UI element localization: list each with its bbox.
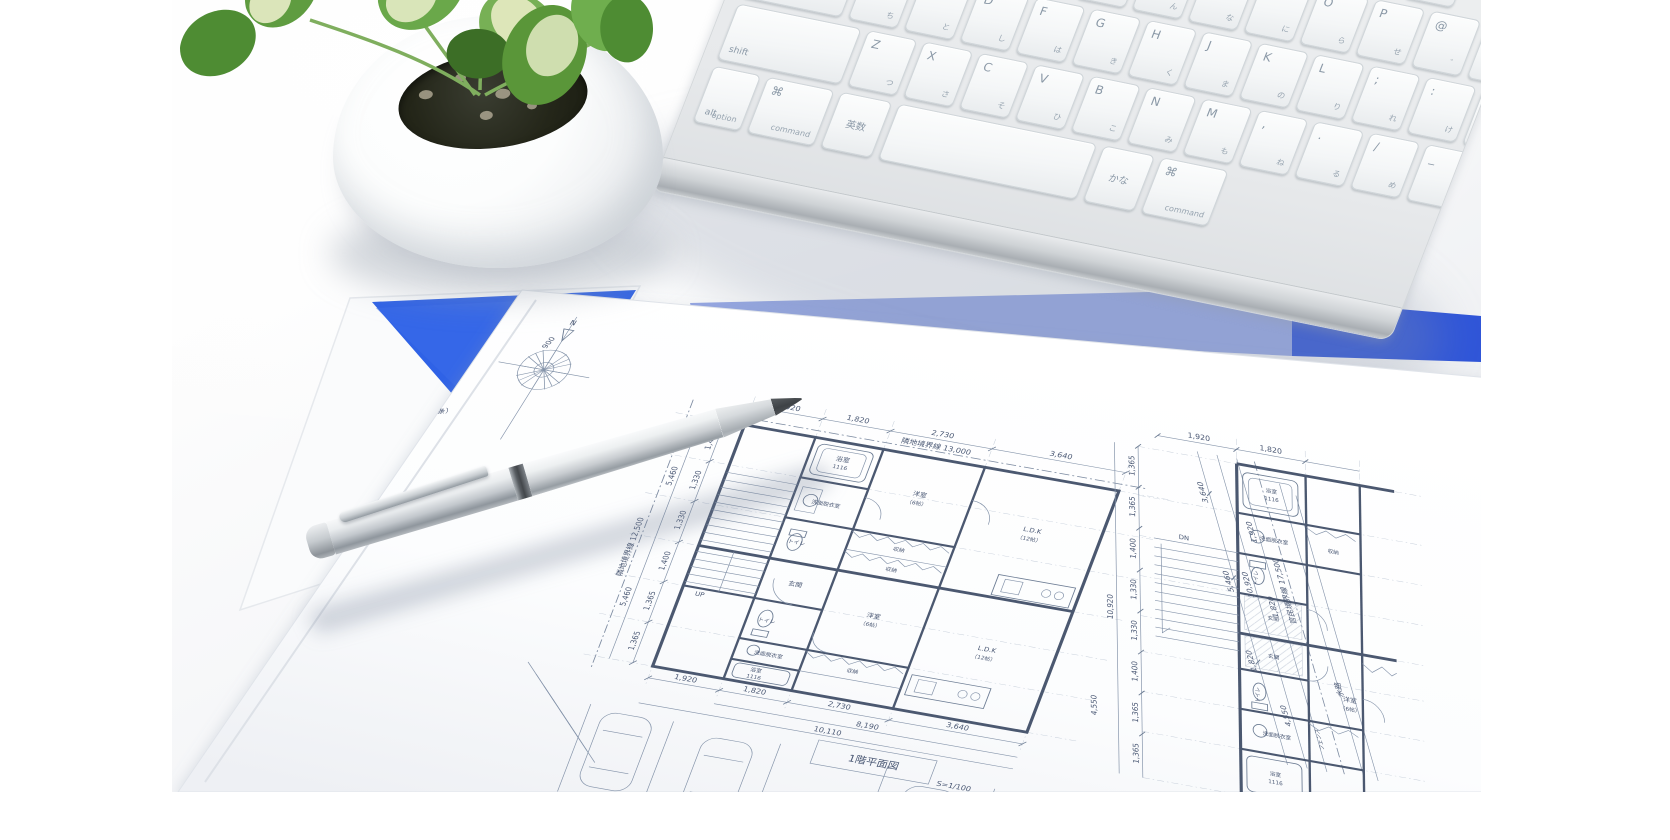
photo-matte-bottom xyxy=(0,792,1670,840)
key-main-label: かな xyxy=(1106,169,1131,187)
key-sub-label: み xyxy=(1163,134,1175,146)
key-sub-label: そ xyxy=(995,100,1007,112)
svg-text:4,550: 4,550 xyxy=(1089,694,1099,716)
svg-text:1,365: 1,365 xyxy=(1131,701,1141,723)
key-main-label: X xyxy=(925,49,938,64)
key-sub-label: こ xyxy=(1107,123,1119,135)
key-sub-label: も xyxy=(1219,145,1231,157)
key-main-label: . xyxy=(1316,128,1325,142)
key-sub-label: に xyxy=(1280,23,1292,35)
key-sub-label: ま xyxy=(1219,78,1231,90)
key-main-label: : xyxy=(1429,84,1438,98)
key-main-label: F xyxy=(1038,4,1050,18)
key-sub-label: は xyxy=(1052,44,1064,56)
key-main-label: H xyxy=(1149,27,1163,42)
key-main-label: V xyxy=(1037,71,1050,86)
key-sub-label: ー xyxy=(1440,0,1452,1)
svg-text:1,330: 1,330 xyxy=(1129,578,1139,600)
key-sub-label: し xyxy=(996,33,1008,45)
key-⌘: ⌘command xyxy=(747,77,835,146)
svg-text:1,365: 1,365 xyxy=(1131,742,1141,764)
key-sub-label: ん xyxy=(1168,1,1180,13)
key-sub-label: く xyxy=(1163,67,1175,79)
key-sub-label: る xyxy=(1330,168,1342,180)
key-main-label: K xyxy=(1261,50,1274,65)
key-sub-label: ひ xyxy=(1051,111,1063,123)
key-main-label: @ xyxy=(1433,18,1450,33)
key-sub-label: の xyxy=(1275,90,1287,102)
key-main-label: C xyxy=(981,60,994,75)
svg-text:トイレ: トイレ xyxy=(1254,570,1260,587)
svg-text:1,365: 1,365 xyxy=(1128,495,1138,517)
key-main-label: , xyxy=(1260,117,1269,131)
key-main-label: ; xyxy=(1373,73,1382,87)
svg-text:トイレ: トイレ xyxy=(1255,687,1261,704)
key-sub-label: な xyxy=(1224,12,1236,24)
key-sub-label: け xyxy=(1443,124,1455,136)
key-main-label: shift xyxy=(727,45,750,58)
key-sub-label: れ xyxy=(1387,113,1399,125)
key-sub-label: せ xyxy=(1391,46,1403,58)
key-main-label: B xyxy=(1093,83,1106,98)
key-sub-label: command xyxy=(1163,203,1205,219)
key-sub-label: ち xyxy=(884,10,896,22)
key-main-label: L xyxy=(1317,61,1329,75)
key-sub-label: command xyxy=(769,123,811,139)
key-main-label: N xyxy=(1149,94,1163,109)
svg-text:1,400: 1,400 xyxy=(1130,660,1140,682)
key-sub-label: り xyxy=(1331,101,1343,113)
key-main-label: _ xyxy=(1428,151,1439,165)
key-sub-label: ね xyxy=(1275,157,1287,169)
svg-text:1,365: 1,365 xyxy=(1127,454,1137,476)
key-sub-label: option xyxy=(710,111,738,124)
svg-text:1,330: 1,330 xyxy=(1129,619,1139,641)
svg-text:1,400: 1,400 xyxy=(1128,537,1138,559)
desk-photo-scene: .w{stroke:#4b5870;stroke-width:2.4;fill:… xyxy=(0,0,1670,840)
key-main-label: P xyxy=(1377,6,1389,20)
key-main-label: / xyxy=(1372,140,1381,154)
key-main-label: ⌘ xyxy=(1163,164,1180,179)
key-sub-label: つ xyxy=(884,77,896,89)
key-main-label: O xyxy=(1321,0,1335,10)
key-sub-label: さ xyxy=(939,88,951,100)
key-main-label: J xyxy=(1205,39,1214,53)
key-sub-label: ゛ xyxy=(1447,58,1459,70)
key-sub-label: き xyxy=(1108,56,1120,68)
key-sub-label: め xyxy=(1386,180,1398,192)
key-main-label: D xyxy=(982,0,996,8)
key-main-label: G xyxy=(1093,16,1107,31)
key-main-label: ⌘ xyxy=(769,84,786,99)
key-main-label: Z xyxy=(869,37,882,52)
key-sub-label: と xyxy=(940,21,952,33)
key-sub-label: ら xyxy=(1336,35,1348,47)
photo-matte-left xyxy=(0,0,172,840)
photo-matte-right xyxy=(1481,0,1670,840)
key-main-label: 英数 xyxy=(844,116,869,134)
key-main-label: M xyxy=(1204,106,1219,121)
key-sub-label: か xyxy=(1112,0,1124,1)
key-⌘: ⌘command xyxy=(1140,157,1228,226)
svg-text:10,920: 10,920 xyxy=(1105,593,1115,620)
